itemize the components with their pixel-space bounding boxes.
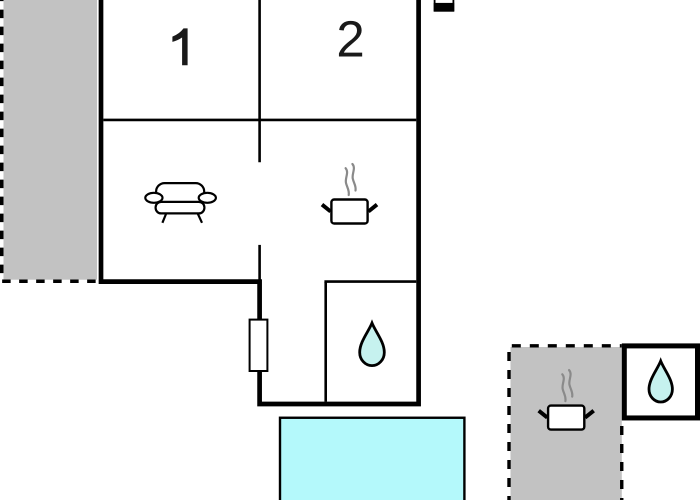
svg-text:2: 2 bbox=[336, 11, 364, 68]
